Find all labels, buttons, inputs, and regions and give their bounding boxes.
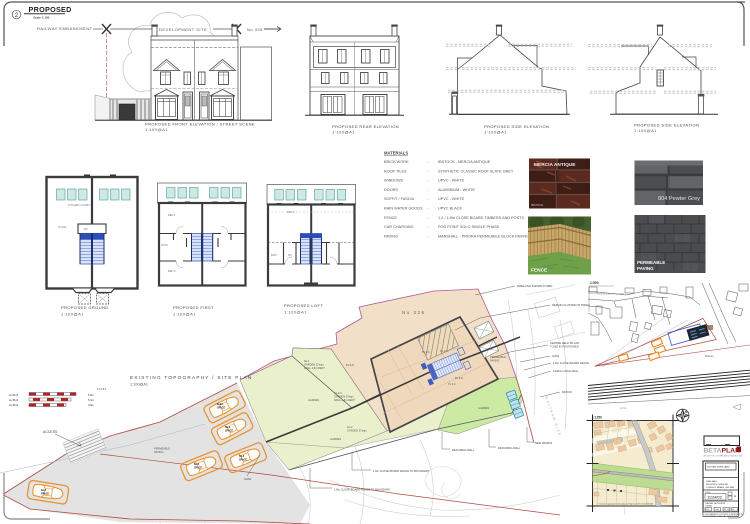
svg-text:260 NEW SWEILLAND: 260 NEW SWEILLAND: [707, 466, 730, 469]
svg-text:GATE: GATE: [244, 477, 251, 481]
svg-text:PAVING: PAVING: [490, 359, 499, 363]
svg-text:BRICK WORK: BRICK WORK: [384, 160, 409, 164]
svg-text:CENTRE HELD PILLAR: CENTRE HELD PILLAR: [550, 341, 579, 345]
svg-text:DEVELOPMENT SITE: DEVELOPMENT SITE: [159, 27, 207, 32]
svg-text:PL 3-6: PL 3-6: [455, 376, 463, 380]
svg-text:SPACE: SPACE: [225, 430, 233, 433]
svg-text:1:17.5:1: 1:17.5:1: [97, 387, 107, 391]
svg-text:PROPOSED FRONT ELEVATION / STR: PROPOSED FRONT ELEVATION / STREET SCENE: [145, 122, 255, 127]
svg-text:BED 3: BED 3: [168, 269, 176, 273]
svg-text:ROOF TILES: ROOF TILES: [384, 169, 407, 173]
svg-text:FENCE: FENCE: [531, 268, 548, 274]
svg-text:PL 3-6: PL 3-6: [440, 349, 448, 353]
svg-text:RAILWAY EMBANKMENT: RAILWAY EMBANKMENT: [37, 26, 93, 31]
svg-text:PAVING: PAVING: [154, 450, 163, 454]
svg-text:PAVING: PAVING: [637, 266, 654, 271]
svg-text:PERMEABLE: PERMEABLE: [154, 447, 170, 451]
svg-text:RETAINING WALL: RETAINING WALL: [498, 446, 521, 450]
svg-text:No.1/2: No.1/2: [334, 391, 342, 395]
svg-text:MERCIA ANTIQUE: MERCIA ANTIQUE: [534, 162, 576, 168]
svg-text:IBSTOCK: IBSTOCK: [531, 203, 543, 207]
svg-text:RETAINING WALL: RETAINING WALL: [452, 448, 475, 452]
svg-text:CAR CHARGING: CAR CHARGING: [384, 225, 414, 229]
svg-text:PERMEABLE: PERMEABLE: [637, 260, 665, 265]
svg-text:PL 3-6: PL 3-6: [422, 350, 430, 354]
svg-text:DWELLING SHOWN AT RED: DWELLING SHOWN AT RED: [517, 284, 552, 288]
svg-text:SPACE: SPACE: [239, 459, 247, 462]
svg-text:WC: WC: [288, 254, 292, 257]
svg-text:BETAPLAN: BETAPLAN: [704, 448, 741, 455]
svg-text:47723: 47723: [620, 408, 627, 410]
svg-text:1.2 / 1.8m CLOSE BOARD TIMBERS: 1.2 / 1.8m CLOSE BOARD TIMBERS AND POSTS: [438, 216, 524, 220]
svg-text:RETAIN: RETAIN: [562, 390, 572, 394]
svg-text:REMAIN CLUSTER OF TREES: REMAIN CLUSTER OF TREES: [552, 303, 590, 307]
svg-text:GARDEN 57sqm: GARDEN 57sqm: [347, 429, 367, 433]
svg-text:PROPOSED REAR ELEVATION: PROPOSED REAR ELEVATION: [332, 124, 399, 129]
svg-text:No 326: No 326: [402, 310, 426, 315]
svg-text:UPVC BLACK: UPVC BLACK: [438, 207, 463, 211]
svg-text:PROPOSED FIRST: PROPOSED FIRST: [173, 305, 214, 310]
svg-text:111M/02: 111M/02: [707, 495, 723, 500]
svg-text:WC: WC: [84, 228, 88, 231]
svg-text:PROPOSED GROUND: PROPOSED GROUND: [61, 305, 109, 310]
svg-text:IBSTOCK - MERCIA ANTIQUE: IBSTOCK - MERCIA ANTIQUE: [438, 160, 491, 164]
svg-text:PROPOSED LOFT: PROPOSED LOFT: [284, 303, 323, 308]
svg-text:4.8m: 4.8m: [88, 403, 94, 407]
svg-text:6.0m: 6.0m: [88, 393, 94, 397]
svg-text:GARDEN 57sqm: GARDEN 57sqm: [304, 363, 324, 367]
svg-text:PERMEABLE: PERMEABLE: [490, 355, 506, 359]
svg-text:No.1: No.1: [304, 359, 310, 363]
svg-text:EXISTING TOPOGRAPHY / SITE PLA: EXISTING TOPOGRAPHY / SITE PLAN: [130, 375, 253, 380]
svg-text:GARDEN: GARDEN: [308, 398, 319, 402]
svg-text:PLANNING: PLANNING: [721, 455, 734, 458]
svg-text:No.2: No.2: [347, 425, 353, 429]
svg-text:SPACE: SPACE: [194, 467, 202, 470]
svg-text:BATH: BATH: [162, 243, 169, 247]
svg-text:FENCE: FENCE: [384, 216, 397, 220]
svg-text:SOFFIT / FASCIA: SOFFIT / FASCIA: [384, 197, 415, 201]
svg-text:JUL 23: JUL 23: [724, 509, 729, 511]
svg-text:1.8m CLOSE BOARD FENCE TO BOUN: 1.8m CLOSE BOARD FENCE TO BOUNDARY: [334, 488, 391, 492]
svg-text:GARDEN: GARDEN: [478, 406, 489, 410]
svg-text:UPVC - WHITE: UPVC - WHITE: [438, 197, 465, 201]
svg-text:1:100@A1: 1:100@A1: [173, 312, 196, 317]
svg-text:LIVING: LIVING: [58, 225, 67, 229]
svg-text:1:500: 1:500: [590, 281, 599, 285]
svg-text:1:100@A1: 1:100@A1: [61, 312, 84, 317]
svg-text:PROPOSED SIDE ELEVATION: PROPOSED SIDE ELEVATION: [634, 123, 699, 128]
svg-text:LH 8m3: LH 8m3: [9, 403, 19, 407]
svg-text:© Crown Copyright and Database: © Crown Copyright and Database Rights 20…: [597, 503, 654, 506]
svg-text:Scale 1:100: Scale 1:100: [33, 16, 50, 20]
svg-text:Bracks: Bracks: [705, 354, 714, 358]
svg-text:DWGS: DWGS: [706, 506, 713, 508]
svg-text:1200mm HIGH WALL: 1200mm HIGH WALL: [553, 369, 579, 373]
svg-text:1:100@A1: 1:100@A1: [130, 383, 148, 387]
svg-text:SPACE: SPACE: [217, 407, 225, 410]
svg-text:KITCHEN / FAMILY: KITCHEN / FAMILY: [68, 203, 91, 207]
svg-text:WALL 1.8m FENT: WALL 1.8m FENT: [304, 366, 325, 370]
svg-text:BED 1: BED 1: [168, 213, 176, 217]
svg-text:PROPOSED SIDE ELEVATION: PROPOSED SIDE ELEVATION: [484, 124, 549, 129]
svg-text:GATE: GATE: [552, 354, 559, 358]
svg-text:1:100@A1: 1:100@A1: [284, 310, 307, 315]
svg-text:GARDEN 57sqm: GARDEN 57sqm: [334, 395, 354, 399]
svg-text:GARDEN: GARDEN: [330, 437, 341, 441]
svg-text:A: A: [734, 494, 736, 498]
svg-text:TO BE IN POSITIONED: TO BE IN POSITIONED: [550, 345, 579, 349]
svg-text:5.4m: 5.4m: [88, 398, 94, 402]
svg-text:N: N: [685, 410, 687, 414]
svg-text:1:100@A1: 1:100@A1: [634, 128, 657, 133]
svg-text:1:100@A1: 1:100@A1: [332, 130, 355, 135]
svg-text:1:100@A1: 1:100@A1: [484, 130, 507, 135]
svg-text:ACCESS: ACCESS: [43, 430, 58, 434]
svg-text:HORSECROFT CLOSE: HORSECROFT CLOSE: [597, 294, 624, 296]
svg-text:POD POINT SOLO SINGLE PHASE: POD POINT SOLO SINGLE PHASE: [438, 225, 500, 229]
svg-text:1.8m CLOSE BOARD FENCE TO BOUN: 1.8m CLOSE BOARD FENCE TO BOUNDARY: [373, 469, 430, 473]
svg-text:SYNTHETIC CLASSIC ROOF SLATE G: SYNTHETIC CLASSIC ROOF SLATE GREY: [438, 169, 514, 173]
svg-text:LH 8m3: LH 8m3: [9, 393, 19, 397]
svg-text:1:100@A1: 1:100@A1: [145, 127, 168, 132]
svg-text:No 326: No 326: [247, 27, 263, 32]
svg-text:260 WILES OWES RD: 260 WILES OWES RD: [706, 484, 729, 486]
svg-text:1:1250: 1:1250: [592, 416, 602, 420]
svg-text:WALL 1.8m FENT: WALL 1.8m FENT: [334, 398, 355, 402]
svg-text:WINDOWS: WINDOWS: [384, 179, 404, 183]
svg-text:DOORS: DOORS: [384, 188, 398, 192]
svg-text:PAVING: PAVING: [384, 234, 398, 238]
svg-text:LING HALL: LING HALL: [706, 480, 718, 483]
svg-text:MATERIALS: MATERIALS: [384, 151, 408, 156]
svg-text:RAIN WATER GOODS: RAIN WATER GOODS: [384, 207, 423, 211]
svg-text:A1@: A1@: [706, 508, 710, 511]
svg-text:1:100: 1:100: [715, 509, 719, 511]
svg-text:1.8m CLOSE BOARD FENCE: 1.8m CLOSE BOARD FENCE: [553, 361, 589, 365]
svg-text:BATH: BATH: [271, 254, 277, 257]
svg-text:PROPOSED: PROPOSED: [29, 5, 72, 14]
svg-text:PL 3-6: PL 3-6: [448, 382, 456, 386]
svg-text:SPACE: SPACE: [41, 493, 49, 496]
svg-text:ALUMINIUM - WHITE: ALUMINIUM - WHITE: [438, 188, 475, 192]
svg-text:UPVC - WHITE: UPVC - WHITE: [438, 179, 465, 183]
svg-text:LH 8m3: LH 8m3: [9, 398, 19, 402]
svg-text:PL 3-6: PL 3-6: [346, 363, 354, 367]
svg-text:NEW WORKS: NEW WORKS: [535, 441, 552, 445]
svg-text:804 Pewter Grey: 804 Pewter Grey: [658, 196, 700, 202]
svg-text:DESIGN: DESIGN: [733, 456, 743, 458]
svg-text:LONGLEY HEATH, 260 9RH: LONGLEY HEATH, 260 9RH: [706, 486, 734, 489]
svg-text:MARSHALL - PRIORA PERMEABLE BL: MARSHALL - PRIORA PERMEABLE BLOCK PAVING: [438, 234, 529, 238]
